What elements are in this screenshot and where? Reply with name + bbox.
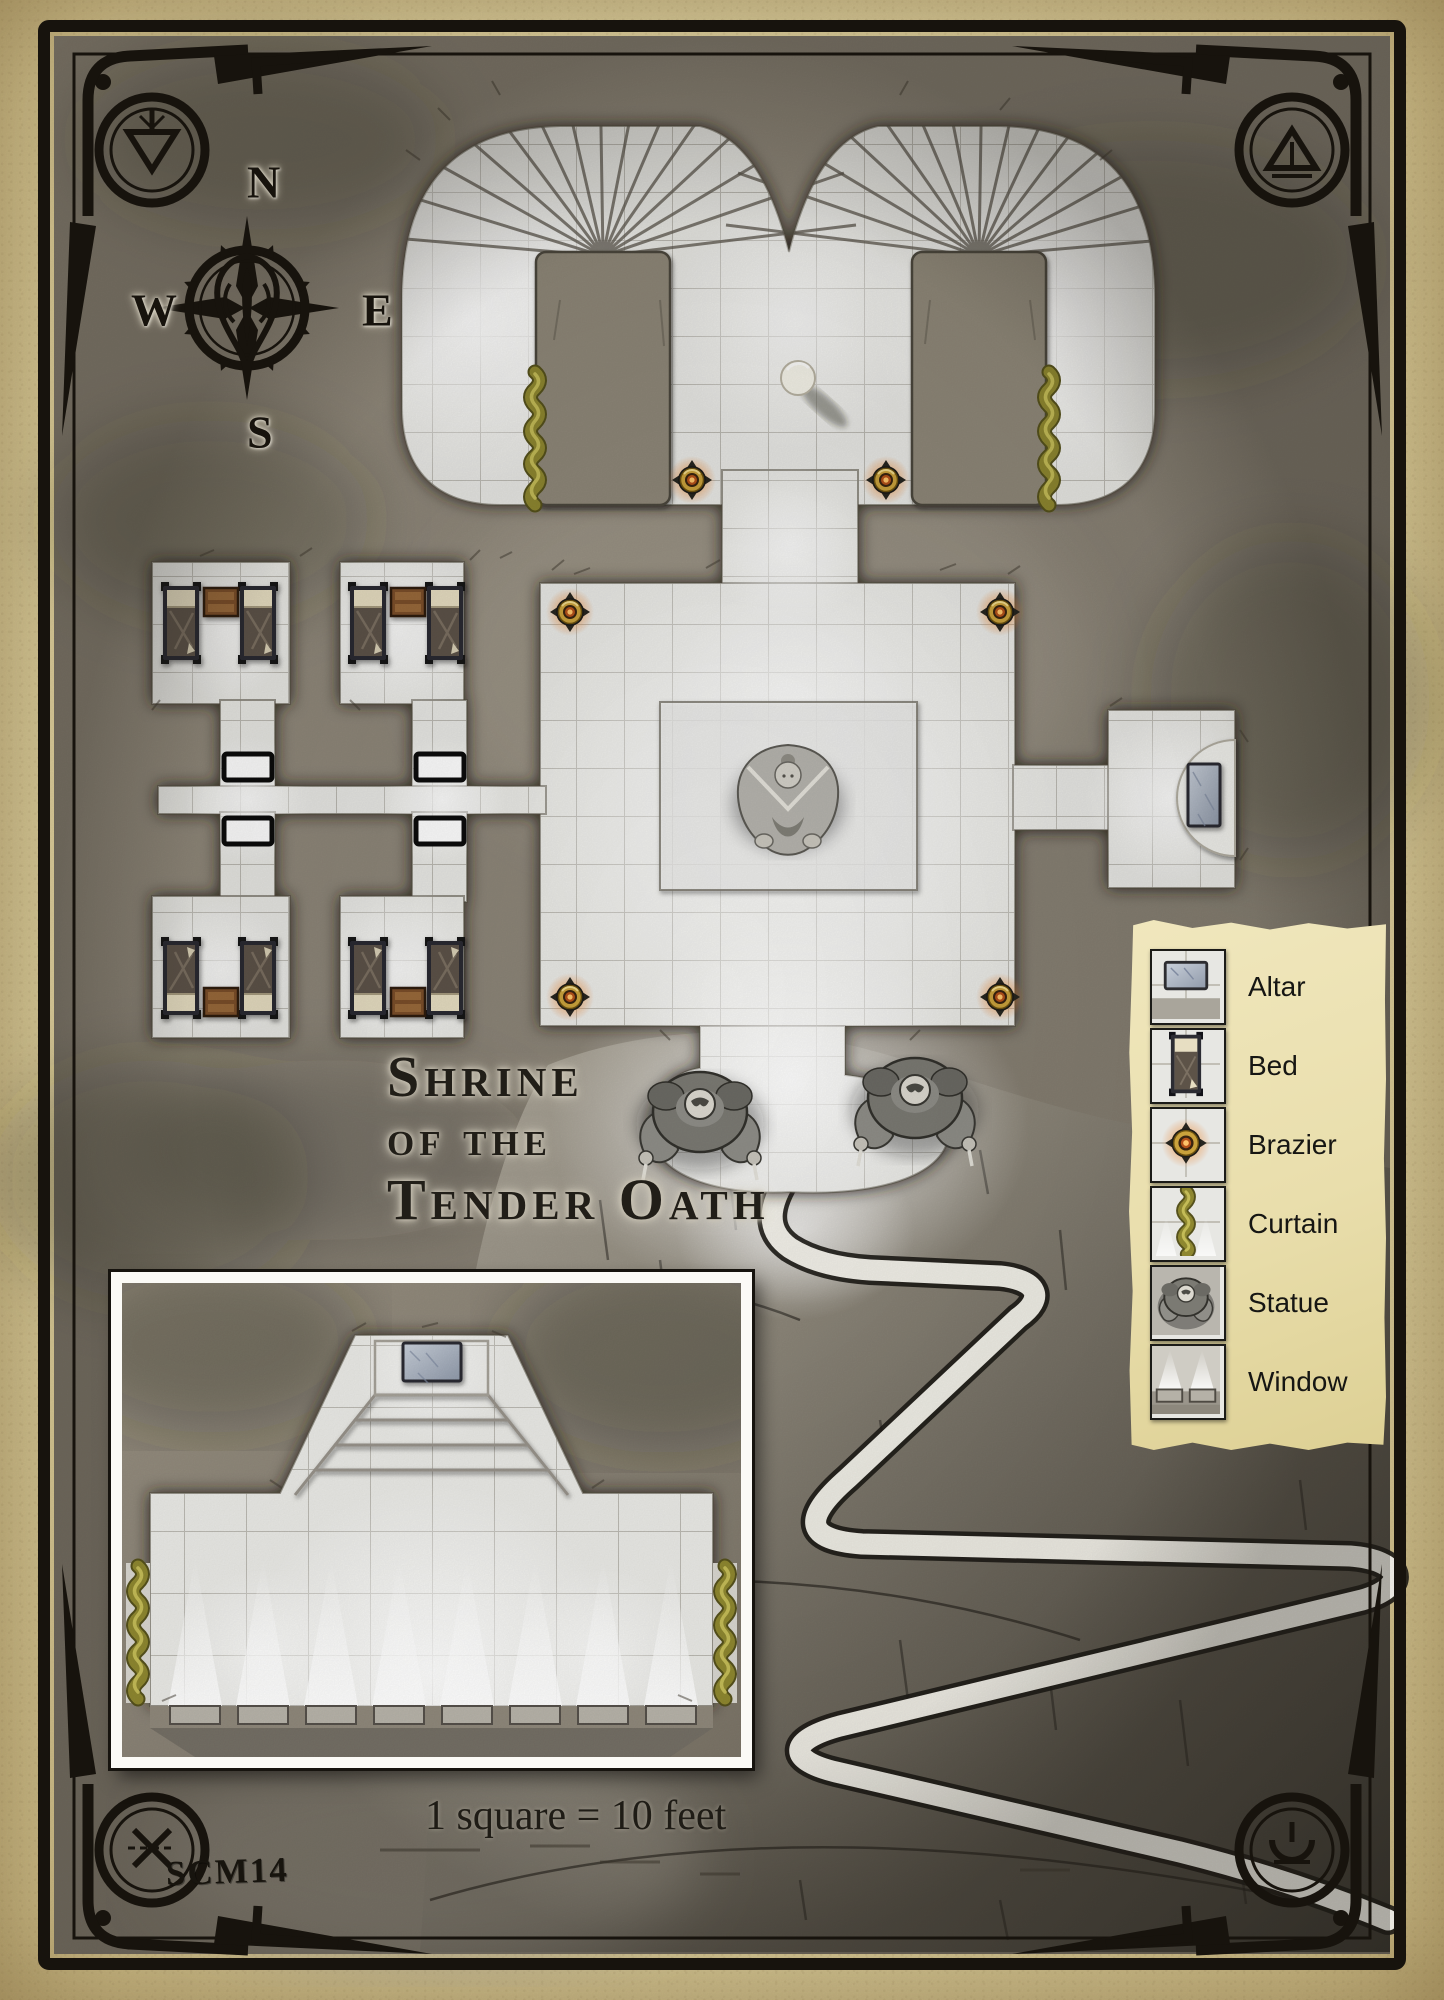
legend-item-label: Statue	[1248, 1287, 1329, 1319]
legend-item: Altar	[1150, 950, 1306, 1024]
map-page: Altar Bed	[0, 0, 1444, 2000]
legend-item: Statue	[1150, 1266, 1329, 1340]
legend-item-label: Altar	[1248, 971, 1306, 1003]
statue-icon	[1152, 1267, 1220, 1335]
legend-item: Curtain	[1150, 1187, 1338, 1261]
legend-item: Bed	[1150, 1029, 1298, 1103]
inset-map	[111, 1272, 752, 1768]
legend-item-label: Bed	[1248, 1050, 1298, 1082]
legend-item: Window	[1150, 1345, 1348, 1419]
map-code: SCM14	[165, 1850, 289, 1894]
legend-panel: Altar Bed	[1128, 920, 1386, 1450]
brazier-icon	[1152, 1109, 1220, 1177]
inset-map-canvas	[122, 1283, 741, 1757]
legend-item-label: Window	[1248, 1366, 1348, 1398]
altar-icon	[1152, 951, 1220, 1019]
bed-icon	[1152, 1030, 1220, 1098]
window-icon	[1152, 1346, 1220, 1414]
legend-item-label: Brazier	[1248, 1129, 1337, 1161]
legend-item: Brazier	[1150, 1108, 1337, 1182]
legend-item-label: Curtain	[1248, 1208, 1338, 1240]
curtain-icon	[1152, 1188, 1220, 1256]
